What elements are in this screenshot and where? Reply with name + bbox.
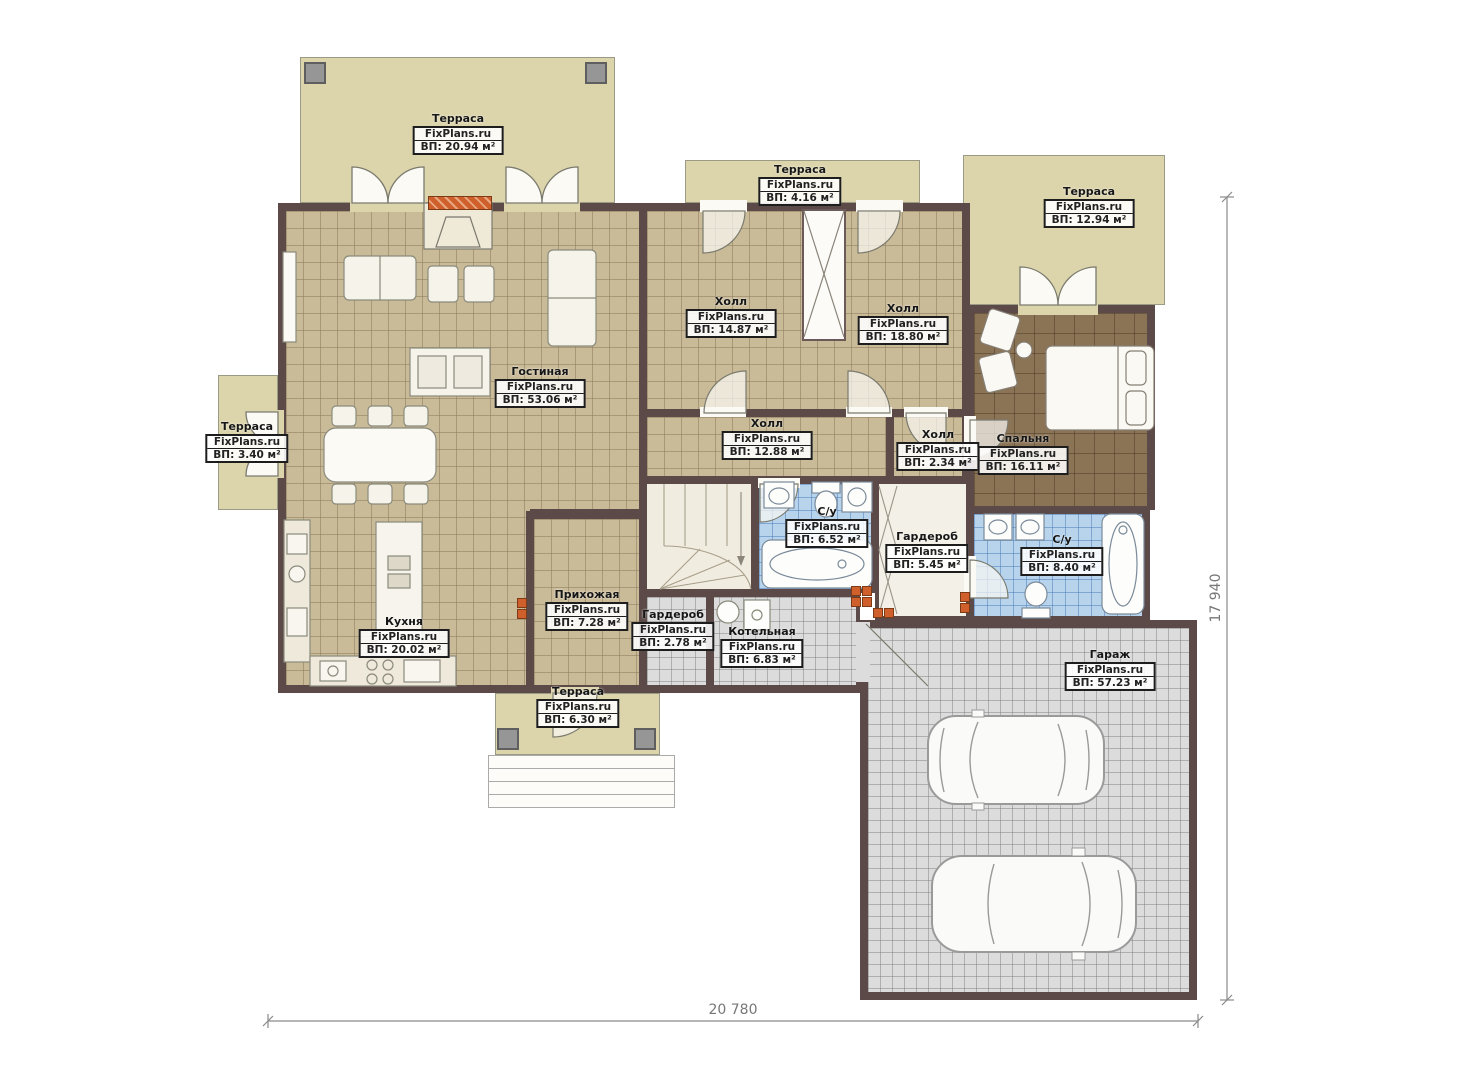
- dimension-bottom: 20 780: [263, 1002, 1203, 1028]
- room-label-bedroom: Спальня FixPlans.ru ВП: 16.11 м²: [978, 432, 1069, 475]
- room-label-kitchen: Кухня FixPlans.ru ВП: 20.02 м²: [359, 615, 450, 658]
- chimney-block: [428, 196, 492, 210]
- wall-segment: [530, 509, 647, 517]
- brick-column: [851, 597, 861, 607]
- brick-column: [862, 586, 872, 596]
- vent-shaft: [802, 209, 846, 341]
- room-label-terrace-left: Терраса FixPlans.ru ВП: 3.40 м²: [205, 420, 288, 463]
- room-label-terrace-top-left: Терраса FixPlans.ru ВП: 20.94 м²: [413, 112, 504, 155]
- room-label-bathroom-2: С/у FixPlans.ru ВП: 8.40 м²: [1020, 533, 1103, 576]
- room-label-terrace-bottom: Терраса FixPlans.ru ВП: 6.30 м²: [536, 685, 619, 728]
- room-label-entrance-hall: Прихожая FixPlans.ru ВП: 7.28 м²: [545, 588, 628, 631]
- room-bedroom: [970, 305, 1155, 510]
- room-stairs: [643, 480, 755, 593]
- floor-plan: 20 780 17 940 Терраса FixPlans.ru ВП: 20…: [0, 0, 1473, 1080]
- brick-column: [884, 608, 894, 618]
- brick-column: [960, 592, 970, 602]
- room-label-hall-nw: Холл FixPlans.ru ВП: 14.87 м²: [686, 295, 777, 338]
- room-label-hall-central: Холл FixPlans.ru ВП: 12.88 м²: [722, 417, 813, 460]
- dimension-bottom-label: 20 780: [709, 1002, 758, 1018]
- room-label-hall-small: Холл FixPlans.ru ВП: 2.34 м²: [896, 428, 979, 471]
- room-label-terrace-top-right: Терраса FixPlans.ru ВП: 12.94 м²: [1044, 185, 1135, 228]
- wall-segment: [526, 511, 534, 693]
- column: [585, 62, 607, 84]
- dimension-right: 17 940: [1208, 192, 1234, 1005]
- room-label-living: Гостиная FixPlans.ru ВП: 53.06 м²: [495, 365, 586, 408]
- brick-column: [517, 609, 527, 619]
- terrace-top-right-area: [963, 155, 1165, 305]
- room-label-bathroom-1: С/у FixPlans.ru ВП: 6.52 м²: [785, 505, 868, 548]
- room-label-wardrobe-1: Гардероб FixPlans.ru ВП: 5.45 м²: [885, 530, 968, 573]
- room-label-wardrobe-2: Гардероб FixPlans.ru ВП: 2.78 м²: [631, 608, 714, 651]
- entrance-steps: [488, 755, 675, 808]
- room-label-hall-ne: Холл FixPlans.ru ВП: 18.80 м²: [858, 302, 949, 345]
- brick-column: [862, 597, 872, 607]
- room-label-terrace-top-middle: Терраса FixPlans.ru ВП: 4.16 м²: [758, 163, 841, 206]
- room-label-boiler: Котельная FixPlans.ru ВП: 6.83 м²: [720, 625, 803, 668]
- column: [497, 728, 519, 750]
- brick-column: [873, 608, 883, 618]
- brick-column: [851, 586, 861, 596]
- brick-column: [960, 603, 970, 613]
- wall-segment: [886, 413, 894, 480]
- column: [304, 62, 326, 84]
- brick-column: [517, 598, 527, 608]
- room-label-garage: Гараж FixPlans.ru ВП: 57.23 м²: [1065, 648, 1156, 691]
- column: [634, 728, 656, 750]
- dimension-right-label: 17 940: [1208, 574, 1224, 623]
